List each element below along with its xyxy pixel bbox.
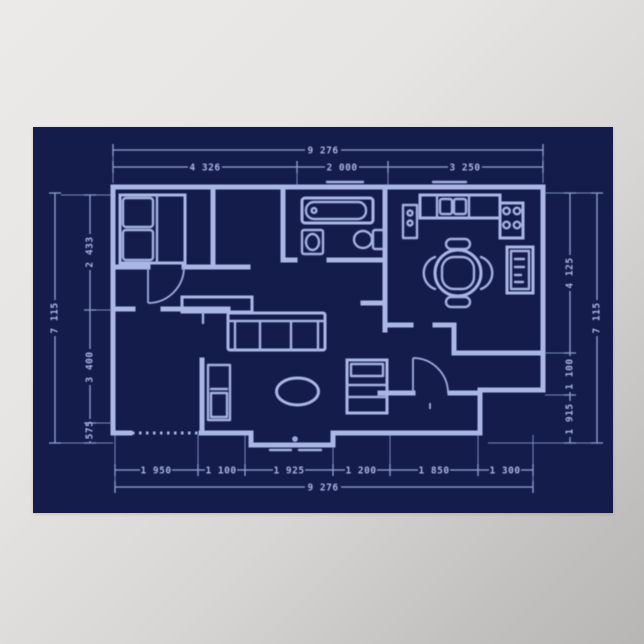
dim-top-total: 9 276 (307, 146, 338, 157)
dim-left-total: 7 115 (50, 302, 61, 333)
kitchen-sink (454, 199, 466, 214)
dim-bottom-segment-6: 1 300 (489, 466, 520, 477)
washbasin (302, 230, 323, 254)
room-wall: 9 276 4 326 2 000 3 250 1 950 1 100 1 92… (0, 0, 644, 644)
dining-chair (481, 257, 492, 289)
kitchen-sink (440, 199, 452, 214)
dining-table (424, 239, 493, 307)
bathtub (302, 198, 373, 223)
floorplan-drawing: 9 276 4 326 2 000 3 250 1 950 1 100 1 92… (33, 127, 613, 513)
coffee-table (277, 378, 319, 405)
dim-left-segment-1: 2 433 (85, 236, 96, 267)
dim-right-segment-2: 1 100 (565, 358, 576, 389)
dim-top-segment-2: 2 000 (326, 163, 357, 174)
dim-bottom-segment-4: 1 200 (345, 466, 376, 477)
blueprint-poster: 9 276 4 326 2 000 3 250 1 950 1 100 1 92… (33, 127, 613, 513)
bed (120, 195, 185, 263)
kitchen-counter (403, 195, 523, 238)
dim-top-segment-3: 3 250 (449, 163, 480, 174)
toilet (354, 230, 384, 249)
dim-bottom-total: 9 276 (307, 483, 338, 494)
dim-top-segment-1: 4 326 (189, 163, 220, 174)
hall-door (413, 358, 448, 393)
dim-left-segment-3: 575 (85, 421, 96, 440)
dim-right-segment-3: 1 915 (565, 403, 576, 434)
dim-bottom-segment-3: 1 925 (273, 466, 304, 477)
doors (148, 267, 448, 409)
refrigerator (507, 247, 533, 293)
entry-door-dot (293, 437, 296, 440)
dining-chair (446, 239, 470, 249)
dining-chair (446, 297, 470, 307)
dim-right-segment-1: 4 125 (565, 257, 576, 288)
dim-bottom-segment-2: 1 100 (205, 466, 236, 477)
dining-chair (424, 257, 435, 289)
bedroom-door (148, 267, 184, 303)
armchair (208, 365, 230, 420)
sofa (228, 313, 325, 350)
dim-right-total: 7 115 (592, 302, 603, 333)
dim-left-segment-2: 3 400 (85, 351, 96, 382)
dim-bottom-segment-1: 1 950 (140, 466, 171, 477)
dim-bottom-segment-5: 1 850 (418, 466, 449, 477)
bookshelf (347, 360, 387, 413)
